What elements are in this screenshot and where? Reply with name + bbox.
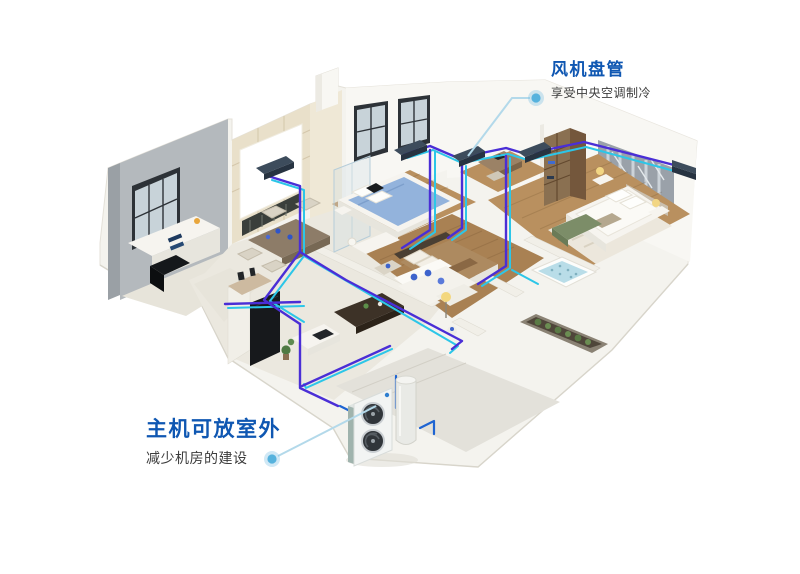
callout-outdoor-unit: 主机可放室外 减少机房的建设 bbox=[146, 418, 281, 467]
fruit-bowl bbox=[194, 218, 200, 224]
callout-fan-coil: 风机盘管 享受中央空调制冷 bbox=[551, 60, 651, 101]
fan-coil-subtitle: 享受中央空调制冷 bbox=[551, 86, 651, 102]
marketing-illustration: 风机盘管 享受中央空调制冷 主机可放室外 减少机房的建设 bbox=[0, 0, 800, 574]
plant bbox=[281, 345, 290, 354]
floor-lamp bbox=[441, 292, 451, 302]
wardrobe bbox=[544, 128, 586, 206]
bedside-lamp bbox=[652, 199, 660, 207]
outdoor-unit-title: 主机可放室外 bbox=[146, 418, 281, 442]
water-tank bbox=[396, 376, 416, 445]
bedside-lamp bbox=[596, 167, 604, 175]
brand-badge bbox=[385, 393, 389, 397]
apartment-3d-cutaway bbox=[0, 0, 800, 574]
fan-coil-title: 风机盘管 bbox=[551, 60, 651, 80]
callout-dot-icon bbox=[531, 93, 540, 102]
outdoor-unit-subtitle: 减少机房的建设 bbox=[146, 449, 281, 467]
